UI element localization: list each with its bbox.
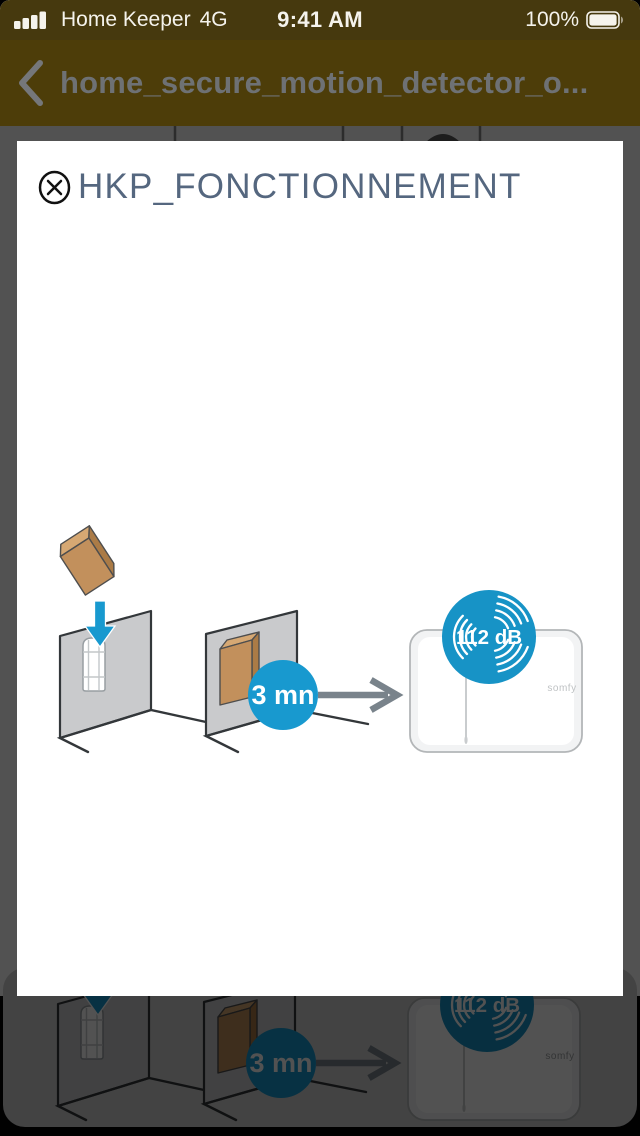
- phone-screen: Home Keeper 4G 9:41 AM 100% home_secure_…: [0, 0, 640, 1136]
- status-right-group: 100%: [525, 8, 626, 32]
- carrier-label: Home Keeper: [61, 8, 191, 32]
- status-bar: Home Keeper 4G 9:41 AM 100%: [0, 0, 640, 40]
- battery-percent-label: 100%: [525, 8, 579, 32]
- battery-icon: [586, 9, 626, 31]
- function-illustration: 3 mn 112 dB somfy: [17, 141, 623, 996]
- volume-label: 112 dB: [456, 626, 522, 649]
- back-button[interactable]: [18, 59, 44, 107]
- nav-title: home_secure_motion_detector_o...: [60, 65, 588, 101]
- content-area: 3 mn 112 dB somfy HKP_FONCTIONNEMENT: [0, 0, 640, 1136]
- status-left-group: Home Keeper 4G: [14, 8, 228, 32]
- timer-label: 3 mn: [251, 680, 314, 710]
- popup-card: HKP_FONCTIONNEMENT 3 mn 112 dB somfy: [17, 141, 623, 996]
- signal-strength-icon: [14, 10, 52, 30]
- brand-label: somfy: [547, 683, 576, 694]
- network-type-label: 4G: [200, 8, 228, 32]
- nav-bar: home_secure_motion_detector_o...: [0, 40, 640, 126]
- back-chevron-icon: [18, 59, 44, 107]
